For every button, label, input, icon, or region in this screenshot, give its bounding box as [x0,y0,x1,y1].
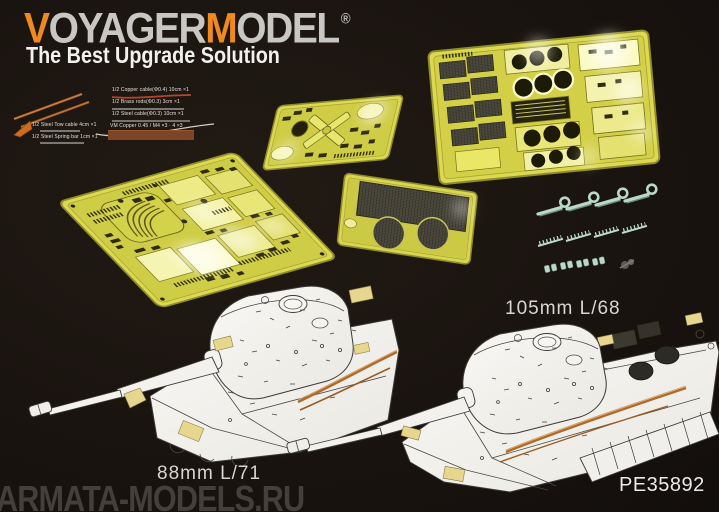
metal-clamp-pairs [544,257,605,273]
copper-cone-part-icon [14,121,32,137]
copper-swatch-bar [108,130,194,140]
gun-label-105mm: 105mm L/68 [505,298,621,320]
brand-tagline: The Best Upgrade Solution [26,42,280,69]
metal-tow-shackles [536,184,658,216]
callout-side-label-2: 1/2 Steel Spring bar 1cm ×1 [32,134,98,139]
product-code: PE35892 [619,474,705,497]
pe-fret-turret-detail [262,95,403,170]
loader-hatch [312,318,328,328]
pe-fret-mesh-screens [337,173,477,265]
watermark: ARMATA-MODELS.RU [0,478,304,512]
metal-misc-part [620,259,634,269]
swatch-label: VM Copper 0.45 / M4 ×3 · 4 ×3 [110,123,183,128]
registered-mark: ® [341,10,351,27]
loader-hatch [566,355,582,365]
metal-cleat-strips [537,224,647,246]
muzzle-brake [28,401,52,418]
product-photo: VOYAGERMODEL® The Best Upgrade Solution … [0,0,719,512]
callout-line-2: 1/2 Brass rods(Φ0.3) 3cm ×1 [112,99,180,104]
callout-side-label-1: 1/2 Steel Tow cable 4cm ×1 [32,122,97,127]
pe-fret-engine-deck [428,27,660,184]
callout-line-3: 1/2 Steel cable(Φ0.3) 10cm ×1 [112,111,184,116]
scene-artwork [0,0,719,512]
callout-line-1: 1/2 Copper cable(Φ0.4) 10cm ×1 [112,87,189,92]
pe-fret-main-hull [58,152,337,308]
